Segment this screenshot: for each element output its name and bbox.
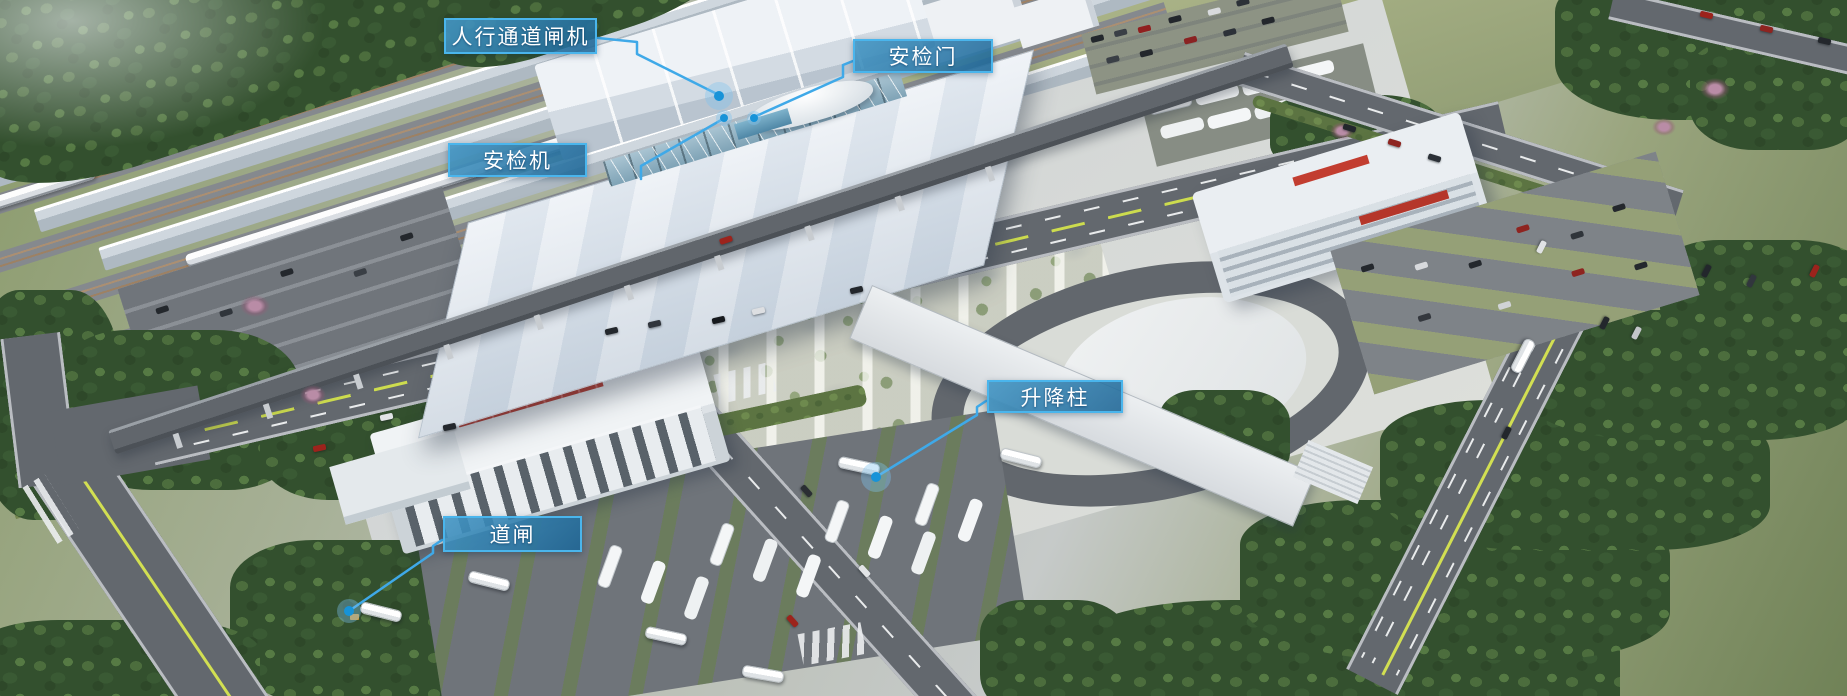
callout-label: 升降柱 <box>1021 382 1090 412</box>
annotation-overlay <box>0 0 1847 696</box>
leader-pedestrian-gate <box>598 38 719 95</box>
callout-security-door[interactable]: 安检门 <box>853 39 993 73</box>
callout-lifting-bollard[interactable]: 升降柱 <box>987 380 1123 413</box>
leader-security-scanner <box>641 119 723 179</box>
leader-road-barrier <box>349 540 442 611</box>
marker-dot-security-door <box>750 114 758 122</box>
leader-security-door <box>754 61 853 117</box>
marker-dot-pedestrian-gate <box>714 91 724 101</box>
station-aerial-rendering: 人行通道闸机 安检门 安检机 升降柱 道闸 <box>0 0 1847 696</box>
callout-label: 人行通道闸机 <box>452 21 590 51</box>
marker-dot-road-barrier <box>344 606 354 616</box>
marker-dot-lifting-bollard <box>871 472 881 482</box>
callout-label: 安检门 <box>889 41 958 71</box>
callout-pedestrian-channel-gate[interactable]: 人行通道闸机 <box>444 18 597 54</box>
marker-dot-security-scanner <box>720 114 728 122</box>
callout-label: 道闸 <box>490 519 536 549</box>
callout-road-barrier[interactable]: 道闸 <box>443 516 582 552</box>
callout-security-scanner[interactable]: 安检机 <box>448 143 587 177</box>
leader-lifting-bollard <box>876 401 986 477</box>
callout-label: 安检机 <box>483 145 552 175</box>
